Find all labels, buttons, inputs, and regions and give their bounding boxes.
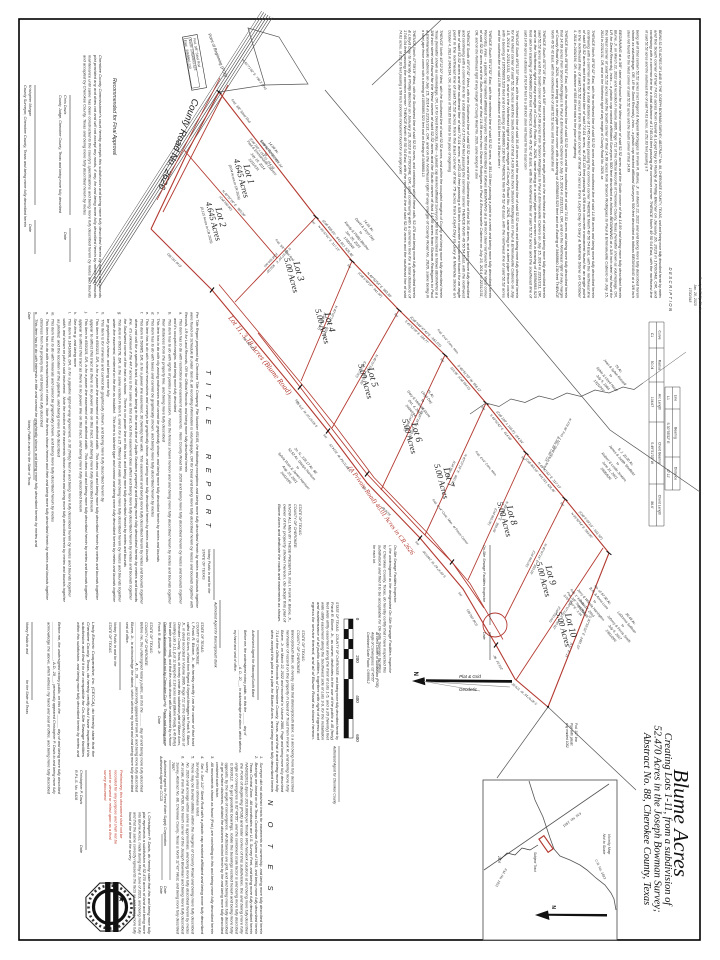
- svg-text:N: N: [412, 672, 418, 676]
- svg-text:Texas (hereafter shown as volu: Texas (hereafter shown as volume/page, O…: [435, 30, 439, 298]
- svg-text:recorded for any purpose and s: recorded for any purpose and shall not b…: [114, 770, 119, 845]
- svg-text:Abstract No. 88, Cherokee Coun: Abstract No. 88, Cherokee County, Texas: [641, 732, 652, 905]
- svg-text:I, the undersigned as the desi: I, the undersigned as the designated On-…: [388, 545, 392, 674]
- svg-text:Combined Scale Factor: 0.99991: Combined Scale Factor: 0.999912: [366, 632, 370, 684]
- svg-text:Per Title Report prepared by C: Per Title Report prepared by Cherokee Ti…: [195, 312, 199, 609]
- svg-text:g. This item in 650/178, DR,: g. This item in 650/178, DR, is the same…: [117, 312, 121, 603]
- svg-text:Angle of Convergence: 02°45'55: Angle of Convergence: 02°45'55": [370, 631, 374, 683]
- svg-text:a steel pipe fence corner with: a steel pipe fence corner with a bearing…: [421, 30, 425, 177]
- svg-text:Before me, the undersigned not: Before me, the undersigned notary public…: [243, 630, 247, 736]
- svg-text:Distance: Distance: [674, 467, 678, 480]
- svg-text:continuing with a common line: continuing with a common line for a tota…: [649, 30, 653, 298]
- svg-text:Blume, Jr. on March 22, 2022 a: Blume, Jr. on March 22, 2022 and recorde…: [613, 30, 617, 298]
- svg-text:County Surveyor, Cherokee Coun: County Surveyor, Cherokee County, Texas …: [23, 85, 27, 227]
- svg-text:Notary Public in and for the S: Notary Public in and for the State of Te…: [27, 420, 31, 486]
- svg-text:COUNTY OF CHEROKEE:: COUNTY OF CHEROKEE:: [293, 504, 297, 548]
- svg-text:Recommended for Final Approval: Recommended for Final Approval: [111, 78, 117, 156]
- svg-text:N O T E S: N O T E S: [266, 800, 275, 895]
- svg-text:OR, and on the Northeast right: OR, and on the Northeast right of way ma…: [475, 30, 479, 179]
- svg-text:does not call for a specific t: does not call for a specific tract, but …: [134, 312, 138, 602]
- svg-text:appear to affect this tract as: appear to affect this tract as there is …: [79, 312, 83, 512]
- svg-text:Date: Date: [482, 632, 486, 640]
- svg-text:plat represents a subdivision: plat represents a subdivision of 52.470 …: [142, 811, 146, 934]
- svg-text:50.04: 50.04: [650, 361, 654, 370]
- svg-text:R.P.L.S. No. 6418: R.P.L.S. No. 6418: [74, 770, 78, 801]
- svg-text:the Southwest corner of the tr: the Southwest corner of the tract as sho…: [123, 312, 127, 567]
- svg-text:I, Christopher P. Davis, do he: I, Christopher P. Davis, do hereby state…: [147, 812, 151, 934]
- svg-text:Kristopher Morgan: Kristopher Morgan: [28, 85, 32, 116]
- svg-text:Frank R. Blume, Jr., as owner,: Frank R. Blume, Jr., as owner, dedicates…: [330, 602, 334, 740]
- svg-text:Before me, the undersigned not: Before me, the undersigned notary public…: [57, 622, 61, 795]
- svg-text:October 4, 2011 in 2404/194, O: October 4, 2011 in 2404/194, OR, a dista…: [448, 30, 452, 172]
- svg-text:COUNTY OF CHEROKEE:: COUNTY OF CHEROKEE:: [195, 622, 199, 665]
- svg-text:No. 2626 and acreage within sa: No. 2626 and acreage within same is appr…: [186, 756, 190, 934]
- svg-text:104.67: 104.67: [650, 397, 654, 407]
- svg-text:for each lot.: for each lot.: [372, 545, 376, 564]
- svg-text:Plat & Grid: Plat & Grid: [459, 674, 481, 679]
- svg-text:4. Set = Set 1/2" Steel Rod: 4. Set = Set 1/2" Steel Rod with a plast…: [200, 756, 204, 935]
- svg-text:4, 2011 in 2404/194, OR, a dis: 4, 2011 in 2404/194, OR, a distance of 5…: [573, 30, 577, 158]
- svg-text:COUNTY OF CHEROKEE:: COUNTY OF CHEROKEE:: [144, 622, 148, 666]
- svg-text:1700/348: 1700/348: [688, 288, 692, 303]
- svg-text:and on the Northeast right of: and on the Northeast right of way margin…: [533, 30, 537, 298]
- svg-text:Cherokee County, Texas, do her: Cherokee County, Texas, do hereby certif…: [86, 622, 90, 757]
- svg-text:j. This item in 650/115, DR: j. This item in 650/115, DR, is for a po…: [84, 311, 88, 601]
- svg-text:of County Road No. 2626, same: of County Road No. 2626, same being in a…: [555, 30, 559, 299]
- svg-text:being all of that certain 52.5: being all of that certain 52.52 acres tr…: [636, 30, 640, 298]
- svg-text:__________________, A. D., 20_: __________________, A. D., 20___, to ack…: [238, 629, 242, 753]
- svg-text:714 of the Official Records of: 714 of the Official Records of Cherokee …: [275, 630, 279, 793]
- svg-text:KNOW ALL MEN BY THESE PRESENTS: KNOW ALL MEN BY THESE PRESENTS, that I, …: [288, 504, 292, 622]
- svg-text:STATE OF TEXAS:: STATE OF TEXAS:: [200, 622, 204, 653]
- svg-text:S 49°51'33" W: S 49°51'33" W: [650, 442, 654, 465]
- svg-text:Date: Date: [27, 312, 31, 319]
- svg-text:with a bearing of 10556893.523: with a bearing of 10556893.523 feet and …: [501, 30, 505, 298]
- svg-text:i. This item in 650/113, DR: i. This item in 650/113, DR, is for a po…: [95, 312, 99, 601]
- svg-text:STATE OF TEXAS: STATE OF TEXAS: [108, 622, 112, 653]
- svg-text:m. This item has to do with m: m. This item has to do with minerals and…: [51, 312, 55, 522]
- svg-text:COUNTY OF CHEROKEE:: COUNTY OF CHEROKEE:: [296, 630, 300, 674]
- svg-text:Arc Length: Arc Length: [658, 394, 662, 411]
- svg-text:Notary Public in and: Notary Public in and: [25, 622, 29, 655]
- svg-text:2014 in 2231/131, OR, and on t: 2014 in 2231/131, OR, and on the Northea…: [600, 29, 604, 179]
- svg-text:STATE OF TEXAS: COUNTY OF CHE: STATE OF TEXAS: COUNTY OF CHEROKEE: and …: [335, 602, 339, 740]
- svg-text:Blume, Jr. on March 22, 2022 a: Blume, Jr. on March 22, 2022 and recorde…: [280, 630, 284, 793]
- svg-text:__________________, A.D., 20__: __________________, A.D., 20___, persona…: [52, 621, 56, 794]
- svg-text:1. Surveyor did not abstract: 1. Surveyor did not abstract tracts for …: [259, 756, 263, 934]
- svg-text:width, and shown on plot in sa: width, and shown on plot in said instrum…: [62, 312, 66, 603]
- svg-text:survey.: survey.: [205, 756, 209, 773]
- svg-text:Survey, Abstract No. 88, Chero: Survey, Abstract No. 88, Cherokee County…: [176, 756, 180, 935]
- svg-text:& Lloyd Day to Randy & Phillip: & Lloyd Day to Randy & Phillip Blecher o…: [408, 30, 412, 299]
- svg-text:2626: 2626: [497, 855, 501, 863]
- svg-text:THENCE South 55°12'52" East, w: THENCE South 55°12'52" East, with the no…: [488, 30, 492, 298]
- svg-text:Pipe with plastic: Pipe with plastic: [570, 723, 574, 746]
- svg-text:and accepted by Cherokee Count: and accepted by Cherokee County, Texas a…: [82, 55, 86, 215]
- svg-text:of said 52.52 acres and the so: of said 52.52 acres and the southeast li…: [644, 30, 648, 171]
- svg-text:e. This item has to do with: e. This item has to do with mineral rese…: [145, 312, 149, 562]
- svg-text:within this subdivision. and b: within this subdivision. and being more …: [76, 622, 80, 758]
- svg-text:combined scale factor.: combined scale factor.: [215, 756, 219, 798]
- svg-text:called 52.52 Acres, of land fr: called 52.52 Acres, of land from Regent …: [186, 622, 190, 746]
- svg-text:angle of convergence is 02°49': angle of convergence is 02°49'55", and t…: [235, 756, 239, 935]
- svg-text:15, 2014 in 2231/131, OR, and: 15, 2014 in 2231/131, OR, and on the Nor…: [506, 30, 510, 299]
- svg-text:86.6': 86.6': [650, 501, 654, 509]
- svg-text:their distances from the prope: their distances from the property line. …: [162, 312, 166, 443]
- svg-text:Chord Length: Chord Length: [658, 495, 662, 516]
- svg-text:opposite, by the angle of conv: opposite, by the angle of convergence. A…: [225, 756, 229, 935]
- svg-text:used or viewed or relied upon: used or viewed or relied upon as a final: [108, 770, 113, 840]
- svg-text:THENCE North 49°52'42" East, w: THENCE North 49°52'42" East, with the no…: [591, 30, 595, 298]
- svg-text:THENCE South 49°51'33" West, w: THENCE South 49°51'33" West, with the no…: [515, 30, 519, 298]
- svg-text:a. This item has to do with: a. This item has to do with restrictions…: [178, 312, 182, 605]
- svg-text:l. This item in 1841/808, D: l. This item in 1841/808, DR, is for a p…: [67, 312, 71, 598]
- svg-text:Authorized Agent for BancorpSo: Authorized Agent for BancorpSouth Bank: [214, 601, 218, 668]
- svg-text:subdivision and find it to be: subdivision and find it to be compatible…: [81, 622, 85, 757]
- svg-text:BEGINNING at a 3/8" steel rod: BEGINNING at a 3/8" steel rod found for …: [618, 30, 622, 298]
- svg-text:Jr., in deed recorded in Volum: Jr., in deed recorded in Volume 2886, Pa…: [182, 621, 186, 747]
- svg-text:I, Frank R. Blume, Jr., do her: I, Frank R. Blume, Jr., do hereby certif…: [191, 622, 195, 747]
- svg-text:2. Bearings are based on the: 2. Bearings are based on the Texas Coord…: [254, 755, 258, 934]
- svg-text:C1: C1: [650, 333, 654, 337]
- svg-text:5. There may be buried utili: 5. There may be buried utilities within …: [190, 756, 194, 935]
- svg-text:for Cherokee County, Texas, do: for Cherokee County, Texas, do hereby ce…: [383, 545, 387, 673]
- svg-text:and maintenance of all public: and maintenance of all public utilities,…: [316, 602, 320, 741]
- svg-text:THENCE South 40°07'16" East, w: THENCE South 40°07'16" East, with a 5/8"…: [542, 30, 546, 298]
- svg-text:o. This item has to do with: o. This item has to do with interests in…: [34, 312, 38, 548]
- svg-text:Frank R. Blume, Jr.: Frank R. Blume, Jr.: [157, 622, 161, 655]
- svg-text:North 49 52 42 East, with the: North 49 52 42 East, with the northwest …: [551, 30, 555, 172]
- svg-text:shown as volume/page, OR, LR f: shown as volume/page, OR, LR for Deed Re…: [631, 30, 635, 298]
- svg-text:1745.04 feet passing the commo: 1745.04 feet passing the common corner T…: [403, 30, 407, 299]
- svg-text:Fnd. 1/2" Iron: Fnd. 1/2" Iron: [574, 723, 578, 742]
- svg-text:that 14.99 acres from Sharon R: that 14.99 acres from Sharon Rodrigues t…: [560, 30, 564, 298]
- svg-text:the Point of Beginning (POB) a: the Point of Beginning (POB) and later c…: [239, 756, 243, 934]
- svg-text:acknowledge the above, which w: acknowledge the above, which witness my …: [47, 622, 51, 795]
- svg-text:Vicinity Map: Vicinity Map: [607, 834, 611, 854]
- svg-text:in the northeast line of said: in the northeast line of said 52.52 acre…: [578, 30, 582, 299]
- svg-text:On-Site Sewage Facilities Insp: On-Site Sewage Facilities Inspector:: [393, 545, 397, 603]
- svg-text:point in the northeast line of: point in the northeast line of said 52.5…: [452, 29, 456, 298]
- svg-text:STATE OF TEXAS:: STATE OF TEXAS:: [298, 504, 302, 536]
- svg-text:BEING 52.470 ACRES OF LAND IN: BEING 52.470 ACRES OF LAND IN THE JOSEPH…: [658, 30, 662, 298]
- svg-text:found at the time of the surve: found at the time of the survey.: [128, 812, 132, 861]
- svg-text:★: ★: [117, 895, 127, 903]
- svg-text:Texas Central Zone. All coord: Texas Central Zone. All coordinates are …: [249, 756, 253, 934]
- svg-text:STATE OF TEXAS:: STATE OF TEXAS:: [149, 622, 153, 654]
- svg-text:owner of the property shown he: owner of the property shown hereon, do a…: [282, 504, 286, 623]
- svg-text:NAD83(2011) Epoch 2010.0000 pe: NAD83(2011) Epoch 2010.0000 per Trimble …: [244, 756, 248, 935]
- svg-text:Blume Acres and dedicate the r: Blume Acres and dedicate the roads and e…: [277, 504, 281, 622]
- svg-text:Not to Scale: Not to Scale: [602, 834, 606, 855]
- svg-text:Date: Date: [28, 224, 32, 232]
- svg-text:feet and on Easting of 3468860: feet and on Easting of 3468860.130 feet …: [528, 30, 532, 299]
- svg-text:600: 600: [355, 734, 360, 742]
- svg-text:seal of office.: seal of office.: [125, 622, 129, 644]
- svg-text:0.999912. To get geodetic bea: 0.999912. To get geodetic bearings, rota…: [230, 756, 234, 934]
- svg-text:7097'.: 7097'.: [171, 756, 175, 772]
- svg-text:said 14.99 acres a distance of: said 14.99 acres a distance of 614.04 fe…: [524, 30, 528, 169]
- svg-text:THENCE North 47°59'19" West, w: THENCE North 47°59'19" West, with the So…: [412, 30, 416, 298]
- svg-text:h. This item is for minerals: h. This item is for minerals and cannot …: [101, 312, 105, 502]
- svg-text:for the State of Texas: for the State of Texas: [25, 680, 29, 714]
- svg-text:Chris Davis: Chris Davis: [63, 95, 67, 115]
- svg-text:& Emmanuelle Cabrero on July 1: & Emmanuelle Cabrero on July 15, 2014 in…: [425, 30, 429, 298]
- svg-text:Cherokee County, Texas, do her: Cherokee County, Texas, do hereby create…: [177, 622, 181, 746]
- svg-text:N: N: [550, 905, 556, 909]
- svg-text:Records), in/as – a plastic ca: Records), in/as – a plastic cap marked a…: [484, 30, 488, 299]
- svg-text:Chord Bearing: Chord Bearing: [658, 442, 662, 464]
- svg-text:STATE OF TEXAS: STATE OF TEXAS: [202, 549, 206, 580]
- svg-text:L1: L1: [666, 396, 670, 400]
- svg-text:Curve: Curve: [658, 330, 662, 339]
- svg-text:to get surface distances, divi: to get surface distances, divided the di…: [220, 756, 224, 935]
- svg-text:Subject Tract: Subject Tract: [533, 852, 537, 873]
- svg-text:survey document: survey document: [103, 770, 108, 801]
- svg-text:wide utility easement along th: wide utility easement along the Southwes…: [321, 602, 325, 740]
- svg-text:and continuing with a common l: and continuing with a common line for a …: [461, 30, 465, 299]
- svg-text:of said 52.52 acres and the So: of said 52.52 acres and the South corner…: [479, 30, 483, 298]
- svg-text:feet wide private road), and t: feet wide private road), and that the ro…: [168, 622, 172, 746]
- svg-text:Date: Date: [63, 232, 67, 240]
- svg-text:were found on Schedule B under: were found on Schedule B under Item 8, a…: [190, 312, 194, 608]
- svg-text:Christopher P. Davis: Christopher P. Davis: [79, 770, 83, 804]
- svg-text:DESCRIPTION: DESCRIPTION: [668, 267, 673, 312]
- svg-text:__________________, A. D., 20_: __________________, A. D., 20___, person…: [135, 621, 139, 793]
- svg-text:THENCE North 49°50'54" East, w: THENCE North 49°50'54" East, with the no…: [564, 30, 568, 298]
- svg-text:n. This item has to do with: n. This item has to do with encroachment…: [45, 312, 49, 601]
- svg-text:3. All monuments shown as fo: 3. All monuments shown as found (Fnd.) a…: [210, 756, 214, 934]
- svg-text:feet wide utility easement alo: feet wide utility easement along the fro…: [325, 602, 329, 741]
- svg-text:47.11': 47.11': [666, 469, 670, 478]
- svg-text:steel rod found for the West c: steel rod found for the West corner of s…: [627, 30, 631, 172]
- svg-text:Before me, the undersigned not: Before me, the undersigned notary public…: [139, 622, 143, 793]
- svg-text:Notary Public in and for the: Notary Public in and for the: [113, 622, 117, 666]
- svg-text:creating Lots 1-11, (Lot 11 be: creating Lots 1-11, (Lot 11 being the 3.…: [172, 622, 176, 746]
- svg-text:egress for service thereof, an: egress for service thereof, and all of B…: [311, 602, 315, 740]
- svg-text:line. It's unknown if the 44.: line. It's unknown if the 44.7 acres is …: [128, 312, 132, 601]
- svg-text:k. See item g. and being mor: k. See item g. and being more: [73, 312, 77, 367]
- svg-text:Geodetic: Geodetic: [459, 687, 478, 692]
- svg-text:said 52.52 acres and the South: said 52.52 acres and the South corner of…: [537, 30, 541, 298]
- svg-text:Notary Public in and for the: Notary Public in and for the: [207, 549, 211, 593]
- svg-text:T I T L E R E P O R T: T I T L E R E P O R T: [204, 370, 213, 530]
- svg-text:6. At scale, from the POB, t: 6. At scale, from the POB, the North cor…: [181, 756, 185, 935]
- svg-text:f. This item in 593/85, DR,: f. This item in 593/85, DR, is for a pow…: [140, 312, 144, 605]
- svg-text:Date: Date: [157, 716, 161, 724]
- svg-text:water line easement, centered: water line easement, centered on the lin…: [112, 312, 116, 603]
- svg-text:lienholder of record on the pr: lienholder of record on the property in …: [285, 630, 289, 793]
- svg-text:3/8 inch steel rod found for t: 3/8 inch steel rod found for the West co…: [430, 30, 434, 298]
- svg-text:400: 400: [355, 695, 360, 703]
- svg-text:the West corner of said 52.52: the West corner of said 52.52 acres and …: [604, 30, 608, 298]
- svg-text:c. This item has to do with: c. This item has to do with city zoning …: [156, 312, 160, 562]
- svg-text:Authorized Agent for Cherokee: Authorized Agent for Cherokee County: [333, 745, 337, 804]
- svg-text:and it's occupied margins. and: and it's occupied margins. and being mor…: [173, 312, 177, 413]
- svg-text:my hand and seal of office.: my hand and seal of office.: [233, 630, 237, 672]
- svg-text:be graphically shown. and bein: be graphically shown. and being more ful…: [106, 312, 110, 397]
- svg-text:74.01 acres, at 251.03 feet pa: 74.01 acres, at 251.03 feet passing a 5/…: [399, 30, 403, 175]
- svg-text:continuing with a common line: continuing with a common line for a tota…: [587, 30, 591, 298]
- svg-text:line of said 52.52 acres and t: line of said 52.52 acres and the southea…: [457, 30, 461, 298]
- svg-text:Randy & Phillip Blecher: Randy & Phillip Blecher: [698, 277, 702, 314]
- svg-text:d. This item has to do with: d. This item has to do with taxes and ca…: [151, 312, 155, 517]
- svg-text:Records, LR for Land Records,: Records, LR for Land Records, OR for Off…: [184, 312, 188, 472]
- svg-text:of said 52.52 acres and the so: of said 52.52 acres and the southeast li…: [582, 30, 586, 299]
- svg-text:County Judge, Cherokee County,: County Judge, Cherokee County, Texas and…: [58, 95, 62, 214]
- svg-text:Bearing: Bearing: [674, 427, 678, 439]
- svg-text:LR for Deed Records), in/as –: LR for Deed Records), in/as – a plastic …: [609, 30, 613, 299]
- svg-text:Surveying unless otherwise not: Surveying unless otherwise noted.: [195, 756, 199, 817]
- svg-text:plat provided any and does not: plat provided any and does not and will …: [93, 54, 97, 298]
- svg-text:Jan. 26, 2023: Jan. 26, 2023: [693, 283, 697, 305]
- svg-text:Cherokee County Commissioner's: Cherokee County Commissioner's court her…: [98, 55, 102, 298]
- svg-text:for the West corner of said 52: for the West corner of said 52.52 acres …: [511, 30, 515, 298]
- svg-text:Blume, Jr., to acknowledge the: Blume, Jr., to acknowledge the above, wh…: [130, 622, 134, 793]
- svg-text:Authorized Agent for BancorpSo: Authorized Agent for BancorpSouth Bank: [251, 629, 255, 697]
- svg-text:Lindy Electric Cooperative, In: Lindy Electric Cooperative, Inc. (CECCA)…: [91, 622, 95, 757]
- svg-text:Date: Date: [79, 845, 83, 853]
- svg-text:into Blume Acres, made during: into Blume Acres, made during May & June…: [137, 812, 141, 934]
- svg-text:distances from the property li: distances from the property line. and be…: [40, 312, 44, 428]
- svg-text:S 30°55'32" E: S 30°55'32" E: [666, 423, 670, 445]
- svg-text:Radius: Radius: [658, 360, 662, 371]
- svg-text:Preliminary, this document sha: Preliminary, this document shall not be: [119, 770, 124, 839]
- svg-text:Creating Lots 1-11, from a sub: Creating Lots 1-11, from a subdivision o…: [662, 733, 673, 908]
- svg-text:maintenance until same has bee: maintenance until same has been construc…: [88, 55, 92, 298]
- svg-text:STATE OF TEXAS:: STATE OF TEXAS:: [301, 630, 305, 662]
- svg-text:Date: Date: [159, 886, 163, 894]
- svg-text:and the southeast line of said: and the southeast line of said 14.99 acr…: [497, 30, 501, 169]
- svg-text:On-Site Sewage Facilities Insp: On-Site Sewage Facilities Inspector: [482, 545, 486, 603]
- svg-text:BancorpSouth Bank, do hereby s: BancorpSouth Bank, do hereby state that …: [291, 630, 295, 793]
- svg-text:does accept this plat as a pla: does accept this plat as a plan for Blum…: [270, 630, 274, 792]
- svg-text:subdivision and find it to be: subdivision and find it to be acceptable…: [377, 545, 381, 673]
- svg-text:Line: Line: [674, 395, 678, 402]
- svg-text:Authorized Agent for CCCD: Authorized Agent for CCCD: [159, 755, 163, 801]
- svg-text:as plotted, and the location o: as plotted, and the location of the pipe…: [56, 312, 60, 458]
- svg-text:THENCE North 40°12'10" West, w: THENCE North 40°12'10" West, with the So…: [439, 30, 443, 298]
- svg-text:52.470 Acres in the Joseph Bow: 52.470 Acres in the Joseph Bowman Survey…: [652, 726, 663, 913]
- svg-text:appear to affect this tract as: appear to affect this tract as there is …: [90, 312, 94, 512]
- svg-text:200: 200: [355, 655, 360, 663]
- svg-text:b. This item has to do with: b. This item has to do with rights of pa…: [167, 312, 171, 605]
- svg-text:and the South corner of that 7: and the South corner of that 74.01 acres…: [654, 30, 658, 299]
